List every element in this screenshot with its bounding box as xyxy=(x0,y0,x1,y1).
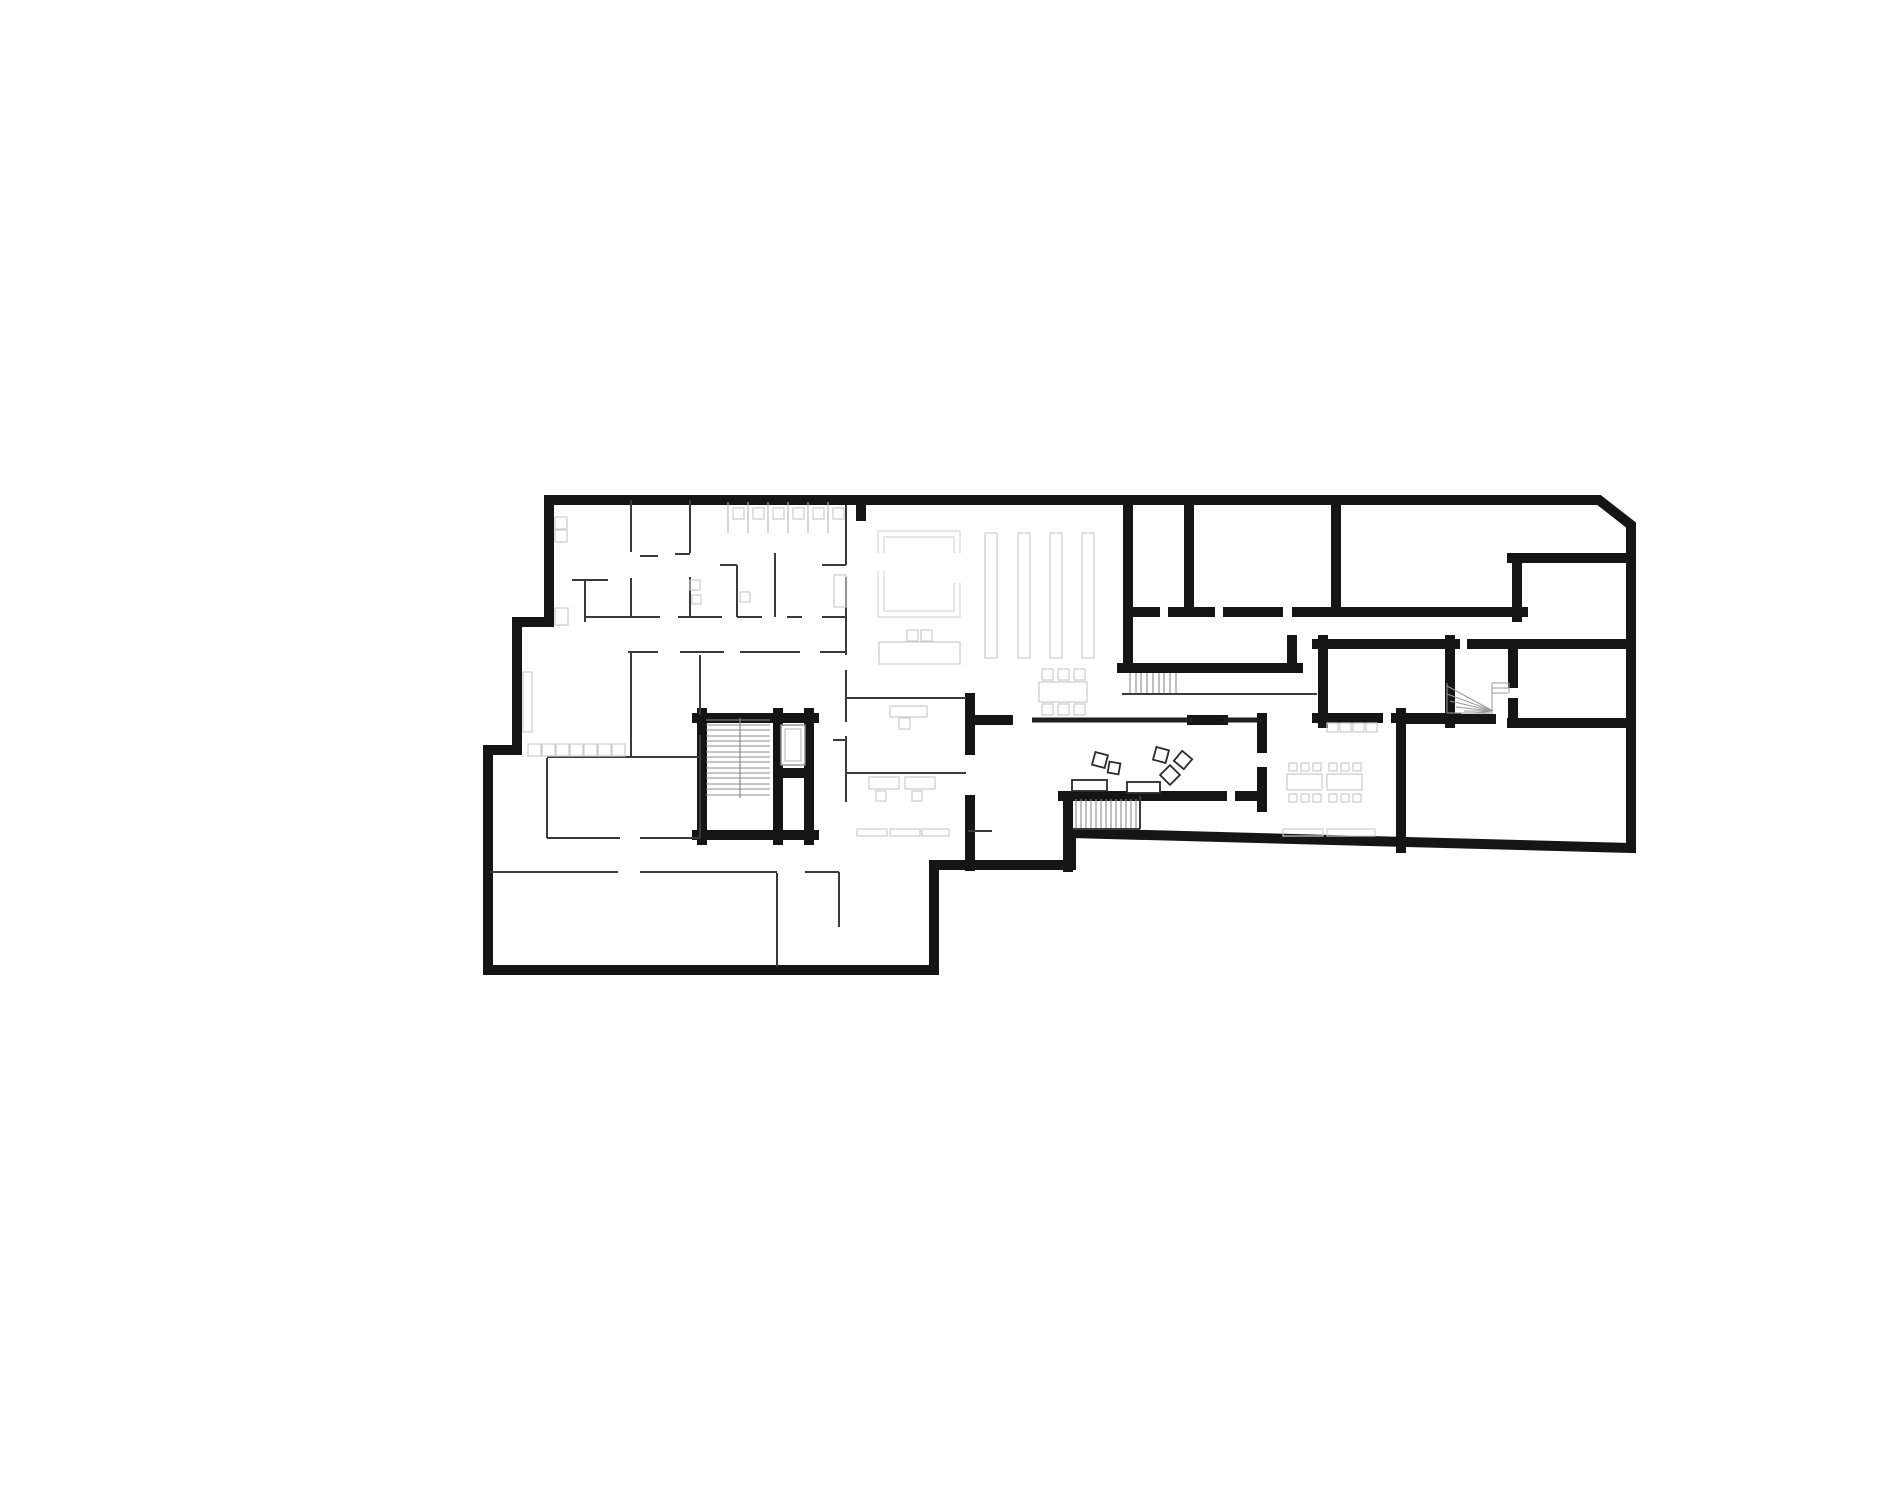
furniture-sofa xyxy=(878,531,960,617)
page xyxy=(0,0,1900,1500)
plan-root xyxy=(488,500,1631,970)
elevator xyxy=(781,725,805,765)
floor-plan xyxy=(0,0,1900,1500)
furniture-dark xyxy=(1072,747,1192,793)
stairs xyxy=(706,502,1509,828)
exterior-walls xyxy=(488,500,1631,970)
